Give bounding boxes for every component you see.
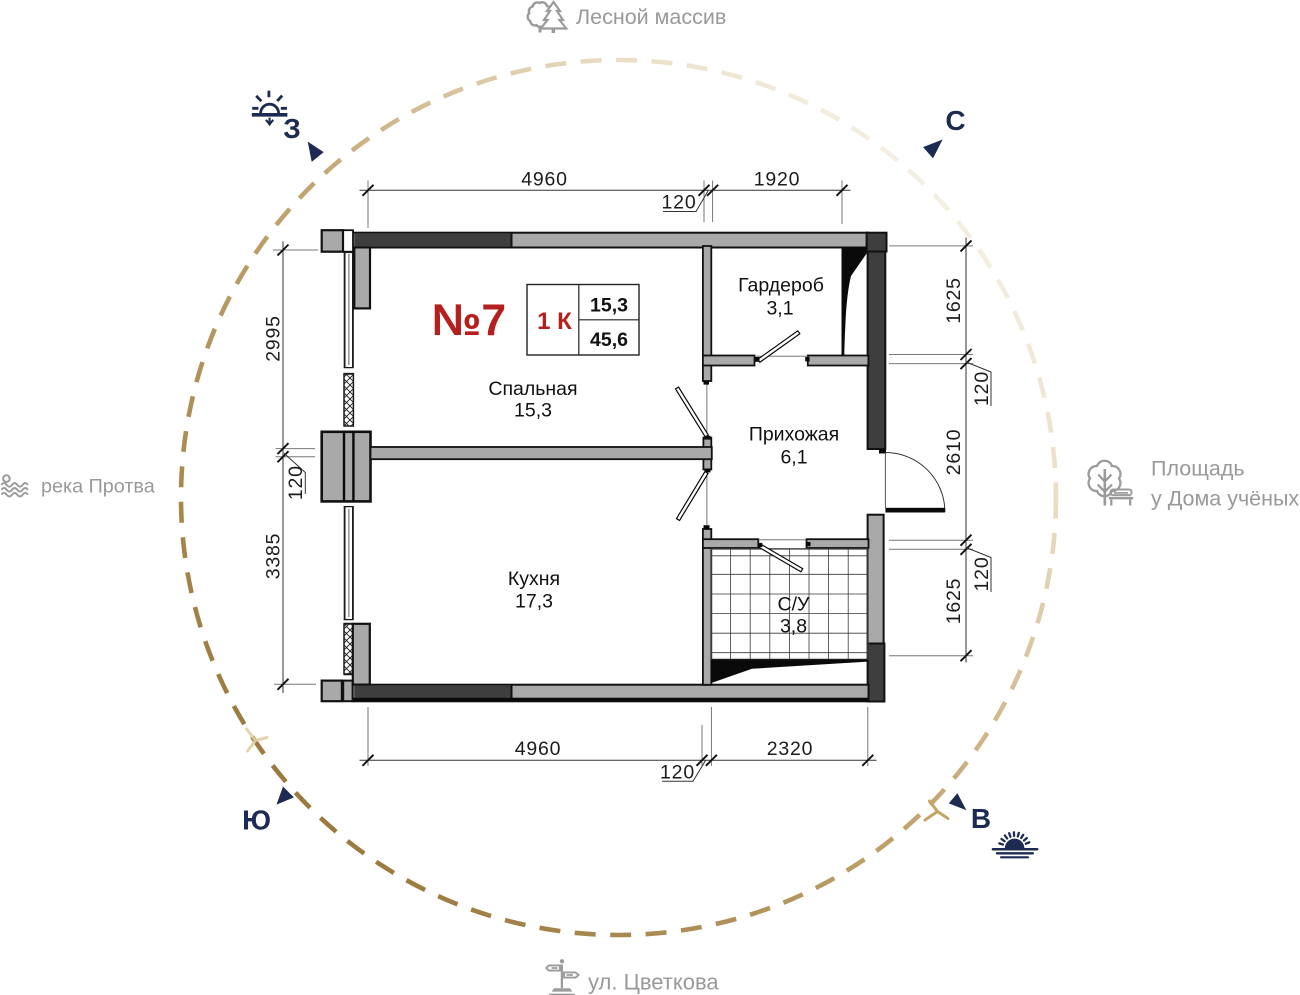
svg-text:3,1: 3,1 [766, 298, 793, 320]
svg-text:120: 120 [971, 371, 993, 406]
svg-text:Лесной массив: Лесной массив [576, 5, 726, 29]
svg-text:река Протва: река Протва [41, 476, 155, 498]
svg-text:В: В [971, 803, 991, 834]
svg-text:1625: 1625 [943, 578, 965, 625]
svg-text:2320: 2320 [767, 738, 814, 760]
svg-text:120: 120 [971, 557, 993, 592]
svg-text:Гардероб: Гардероб [738, 275, 824, 297]
svg-text:1 К: 1 К [537, 308, 572, 335]
svg-text:6,1: 6,1 [780, 447, 807, 469]
svg-text:45,6: 45,6 [590, 329, 628, 351]
svg-text:№7: №7 [432, 296, 506, 345]
svg-text:ул. Цветкова: ул. Цветкова [588, 970, 719, 995]
svg-text:4960: 4960 [521, 169, 568, 191]
svg-text:С/У: С/У [778, 594, 811, 616]
svg-text:17,3: 17,3 [515, 591, 553, 613]
svg-text:Прихожая: Прихожая [749, 424, 839, 446]
svg-text:4960: 4960 [515, 738, 562, 760]
svg-text:1625: 1625 [943, 277, 965, 324]
svg-text:З: З [283, 113, 301, 144]
svg-text:120: 120 [285, 465, 307, 500]
svg-text:1920: 1920 [754, 169, 801, 191]
svg-text:Ю: Ю [242, 805, 271, 836]
svg-text:120: 120 [660, 761, 695, 783]
svg-text:15,3: 15,3 [514, 400, 552, 422]
svg-text:Спальная: Спальная [488, 378, 577, 400]
svg-text:15,3: 15,3 [590, 295, 628, 317]
svg-text:у Дома учёных: у Дома учёных [1151, 487, 1299, 511]
svg-text:3,8: 3,8 [780, 616, 807, 638]
svg-text:2610: 2610 [943, 429, 965, 476]
svg-text:Площадь: Площадь [1151, 457, 1245, 481]
svg-text:3385: 3385 [263, 533, 285, 580]
svg-text:Кухня: Кухня [508, 568, 560, 590]
svg-text:С: С [945, 105, 965, 136]
svg-text:2995: 2995 [263, 315, 285, 362]
svg-text:120: 120 [662, 192, 697, 214]
